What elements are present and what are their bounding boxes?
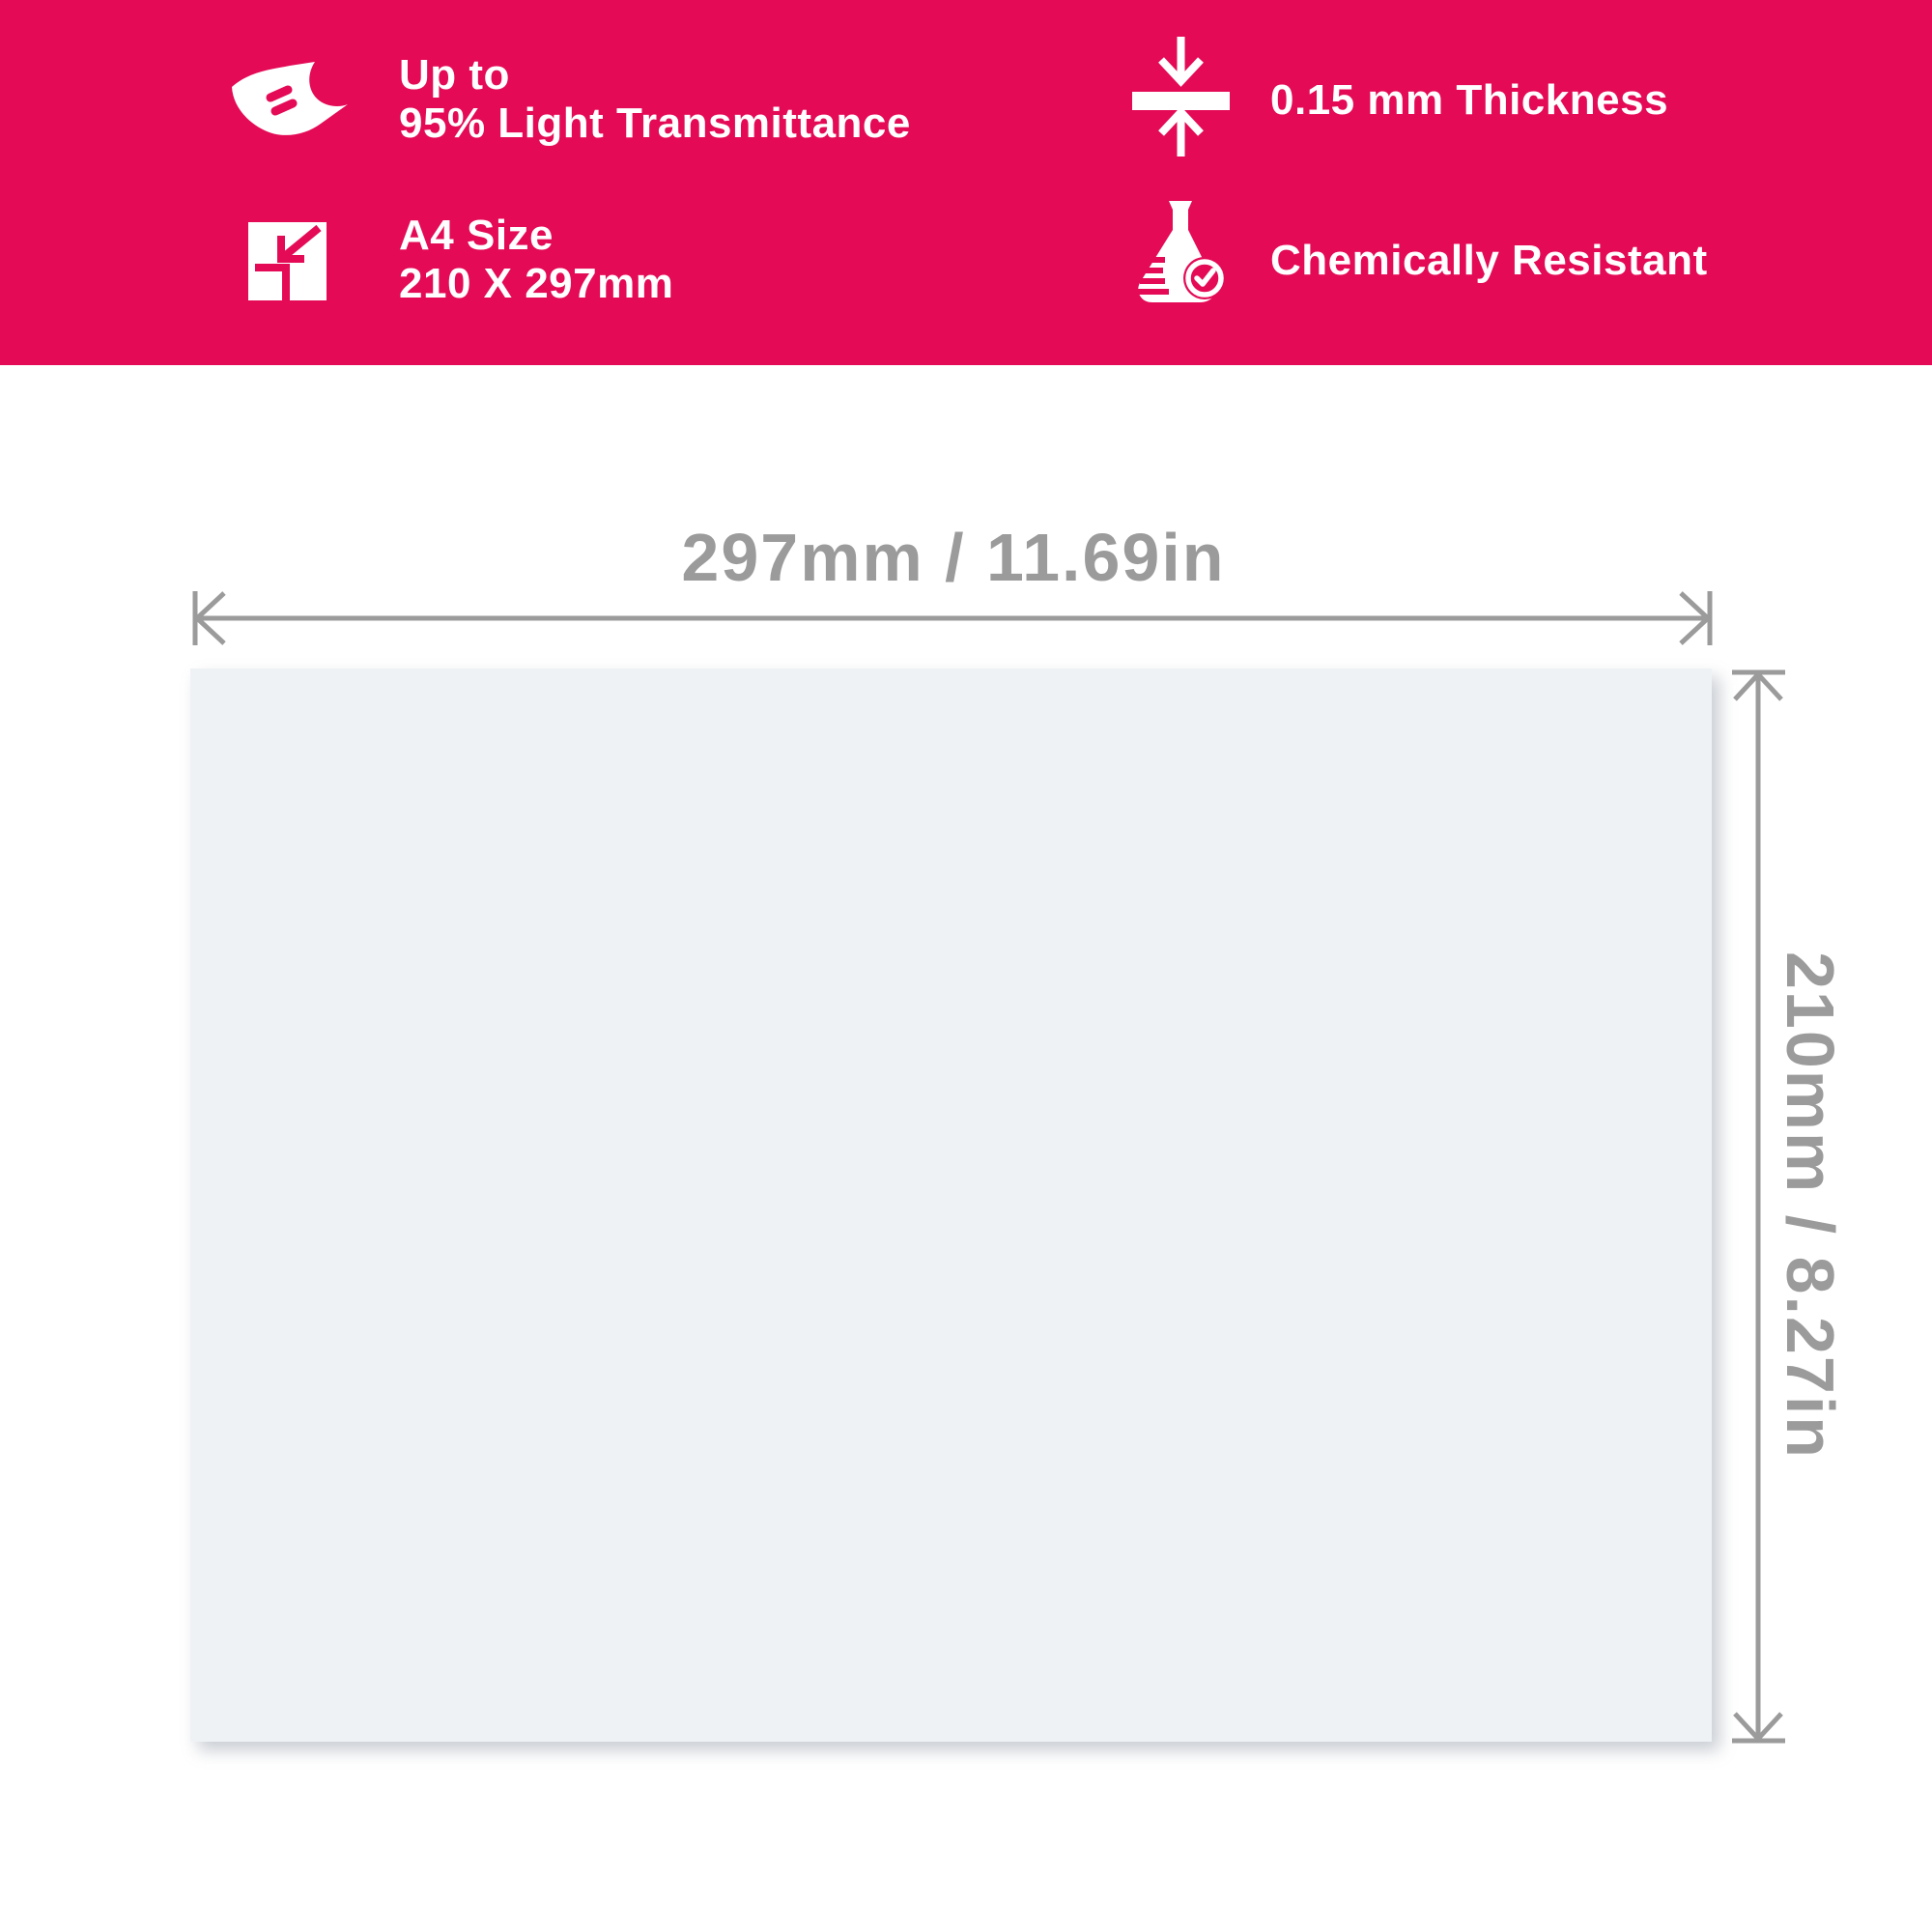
feature-thickness-line1: 0.15 mm Thickness (1270, 76, 1668, 125)
feature-chemical: Chemically Resistant (1270, 237, 1708, 285)
feature-light-line1: Up to (399, 51, 911, 99)
feature-a4-size: A4 Size 210 X 297mm (399, 212, 673, 308)
width-dimension-label: 297mm / 11.69in (681, 519, 1225, 596)
feature-chemical-line1: Chemically Resistant (1270, 237, 1708, 285)
thickness-compress-icon (1132, 35, 1230, 158)
a4-resize-icon (248, 222, 327, 300)
film-sheet-icon (220, 60, 352, 141)
feature-light-transmittance: Up to 95% Light Transmittance (399, 51, 911, 148)
feature-thickness: 0.15 mm Thickness (1270, 76, 1668, 125)
flask-check-icon (1136, 201, 1233, 315)
height-dimension-label: 210mm / 8.27in (1772, 952, 1849, 1460)
a4-sheet-preview (190, 668, 1712, 1742)
feature-a4-line2: 210 X 297mm (399, 260, 673, 308)
feature-banner: Up to 95% Light Transmittance A4 Size 21… (0, 0, 1932, 365)
width-dimension-arrow (190, 585, 1715, 651)
feature-a4-line1: A4 Size (399, 212, 673, 260)
feature-light-line2: 95% Light Transmittance (399, 99, 911, 148)
